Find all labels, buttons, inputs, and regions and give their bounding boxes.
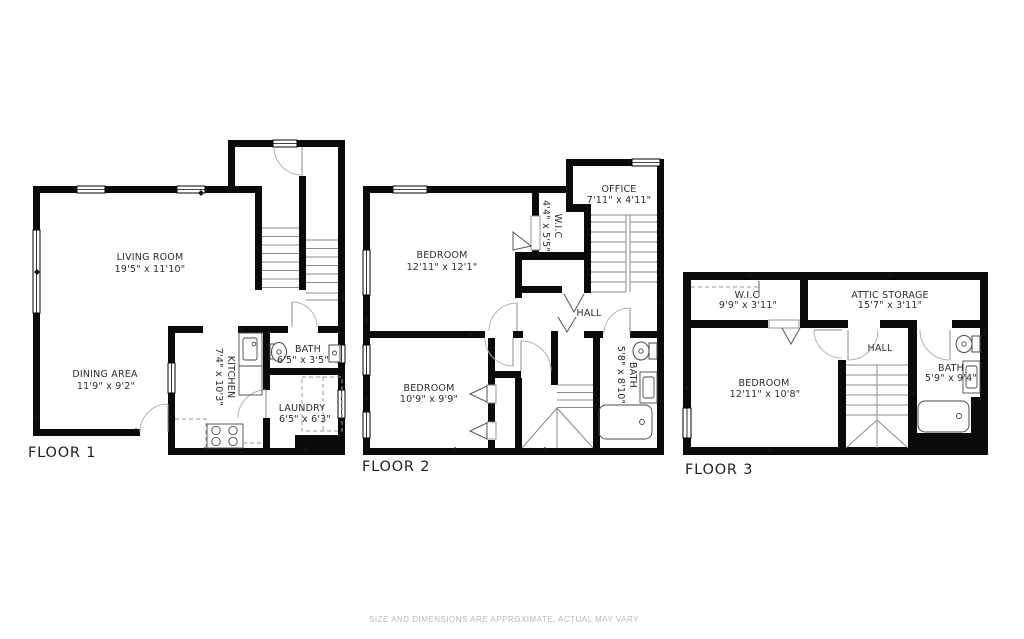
disclaimer-text: SIZE AND DIMENSIONS ARE APPROXIMATE, ACT… bbox=[369, 615, 639, 624]
floor2-stairs-down bbox=[522, 385, 593, 448]
toilet-icon bbox=[649, 343, 657, 359]
toilet-icon bbox=[972, 336, 980, 352]
wic2-label: W.I.C bbox=[552, 214, 563, 239]
laundry-label: LAUNDRY bbox=[279, 403, 326, 414]
kitchen-dims: 7'4" x 10'3" bbox=[213, 348, 224, 406]
bedroom2-closet-bifold bbox=[470, 386, 487, 402]
bedroom3-label: BEDROOM bbox=[739, 378, 790, 389]
wic2-label-group: W.I.C 4'4" x 5'5" bbox=[540, 200, 563, 252]
office-label: OFFICE bbox=[601, 184, 636, 195]
bath2-label: BATH bbox=[627, 362, 638, 388]
floor2-plan: BEDROOM 12'11" x 12'1" BEDROOM 10'9" x 9… bbox=[362, 159, 664, 475]
counter-dashed-outline bbox=[175, 419, 206, 447]
dining-area-label: DINING AREA bbox=[72, 369, 138, 380]
floor3-title: FLOOR 3 bbox=[685, 462, 753, 478]
living-room-dims: 19'5" x 11'10" bbox=[115, 264, 186, 275]
floor1-plan: LIVING ROOM 19'5" x 11'10" DINING AREA 1… bbox=[28, 140, 345, 461]
bath2-dims: 5'8" x 8'10" bbox=[615, 346, 626, 404]
floor1-title: FLOOR 1 bbox=[28, 445, 96, 461]
bedroom1-dims: 12'11" x 12'1" bbox=[407, 262, 478, 273]
floor3-windows bbox=[683, 408, 691, 438]
wic-bifold-door bbox=[782, 328, 800, 344]
bedroom2-closet-bifold bbox=[470, 423, 487, 439]
wic2-dims: 4'4" x 5'5" bbox=[540, 200, 551, 252]
laundry-dims: 6'5" x 6'3" bbox=[279, 414, 331, 425]
bath3-dims: 5'9" x 9'4" bbox=[925, 373, 977, 384]
bath1-label: BATH bbox=[295, 344, 321, 355]
bedroom2-label: BEDROOM bbox=[404, 383, 455, 394]
bath1-dims: 6'5" x 3'5" bbox=[277, 355, 329, 366]
floor2-fixtures bbox=[599, 342, 657, 439]
floor3-plan: W.I.C 9'9" x 3'11" ATTIC STORAGE 15'7" x… bbox=[683, 272, 988, 478]
bedroom2-dims: 10'9" x 9'9" bbox=[400, 394, 458, 405]
dining-area-dims: 11'9" x 9'2" bbox=[77, 381, 135, 392]
bedroom1-label: BEDROOM bbox=[417, 250, 468, 261]
living-room-label: LIVING ROOM bbox=[117, 252, 184, 263]
linen-bifold-door bbox=[558, 317, 576, 332]
office-dims: 7'11" x 4'11" bbox=[587, 195, 652, 206]
kitchen-label-group: KITCHEN 7'4" x 10'3" bbox=[213, 348, 236, 406]
floor2-title: FLOOR 2 bbox=[362, 459, 430, 475]
floorplan-page: LIVING ROOM 19'5" x 11'10" DINING AREA 1… bbox=[0, 0, 1024, 639]
floor2-labels: BEDROOM 12'11" x 12'1" BEDROOM 10'9" x 9… bbox=[362, 184, 651, 475]
wic-bifold-door bbox=[513, 232, 531, 250]
hall2-label: HALL bbox=[576, 308, 602, 319]
kitchen-sink-icon bbox=[243, 338, 257, 360]
floor3-stairs bbox=[846, 365, 908, 448]
attic-storage-dims: 15'7" x 3'11" bbox=[858, 300, 923, 311]
sink-icon bbox=[329, 345, 340, 362]
bathtub-icon bbox=[599, 405, 652, 439]
kitchen-label: KITCHEN bbox=[225, 356, 236, 399]
bedroom3-dims: 12'11" x 10'8" bbox=[730, 389, 801, 400]
hall3-label: HALL bbox=[867, 343, 893, 354]
wic3-dims: 9'9" x 3'11" bbox=[719, 300, 777, 311]
floor2-stairs-up bbox=[591, 215, 657, 292]
floorplan-canvas: LIVING ROOM 19'5" x 11'10" DINING AREA 1… bbox=[0, 0, 1024, 639]
